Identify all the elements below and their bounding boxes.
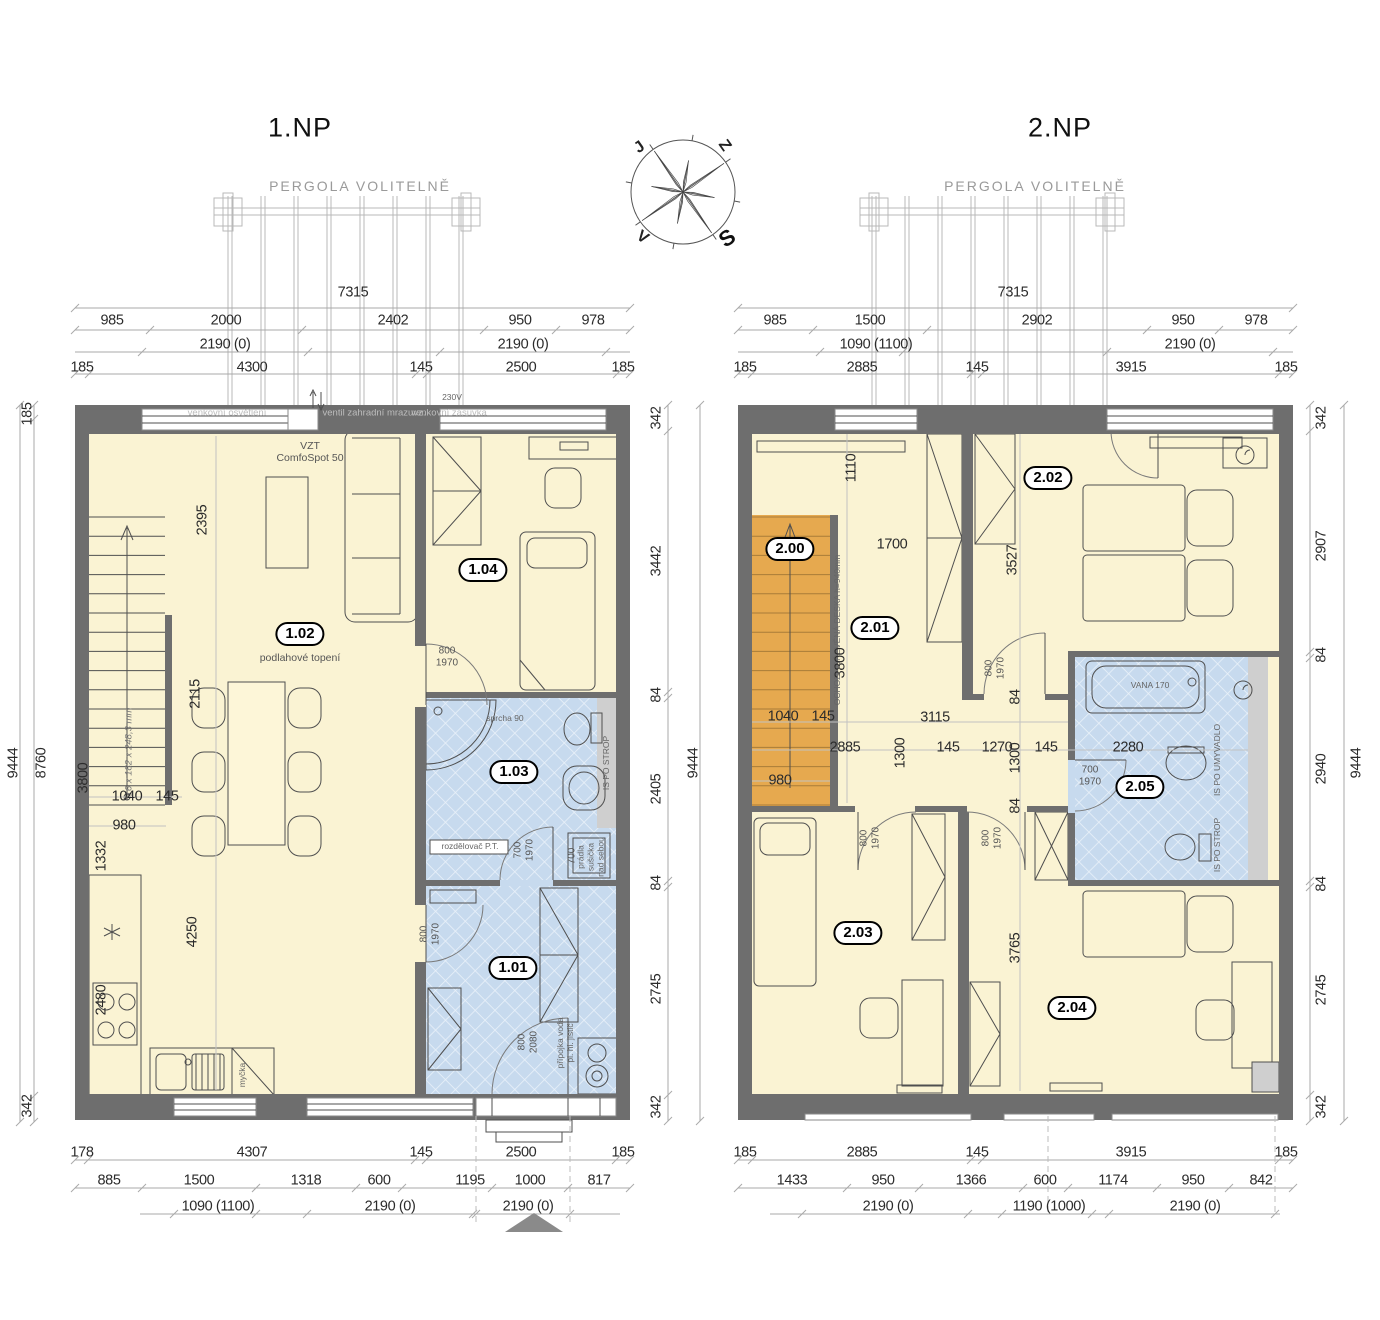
shaft-2np xyxy=(1248,657,1268,880)
stair-rail-wall xyxy=(165,615,172,805)
shaft-1np xyxy=(597,698,617,828)
plan-2np xyxy=(738,405,1293,1120)
bathroom-2-05-floor xyxy=(1075,657,1248,880)
hall-1-01-floor xyxy=(426,886,617,1094)
compass-rose xyxy=(626,135,740,249)
stair-rail-wall-2np xyxy=(830,515,838,806)
plan-1np xyxy=(75,390,630,1142)
floor-plan-drawing xyxy=(0,0,1380,1320)
floor-plan-canvas: 1.NP2.NPPERGOLA VOLITELNĚPERGOLA VOLITEL… xyxy=(0,0,1380,1320)
entrance-marker xyxy=(505,1213,563,1232)
